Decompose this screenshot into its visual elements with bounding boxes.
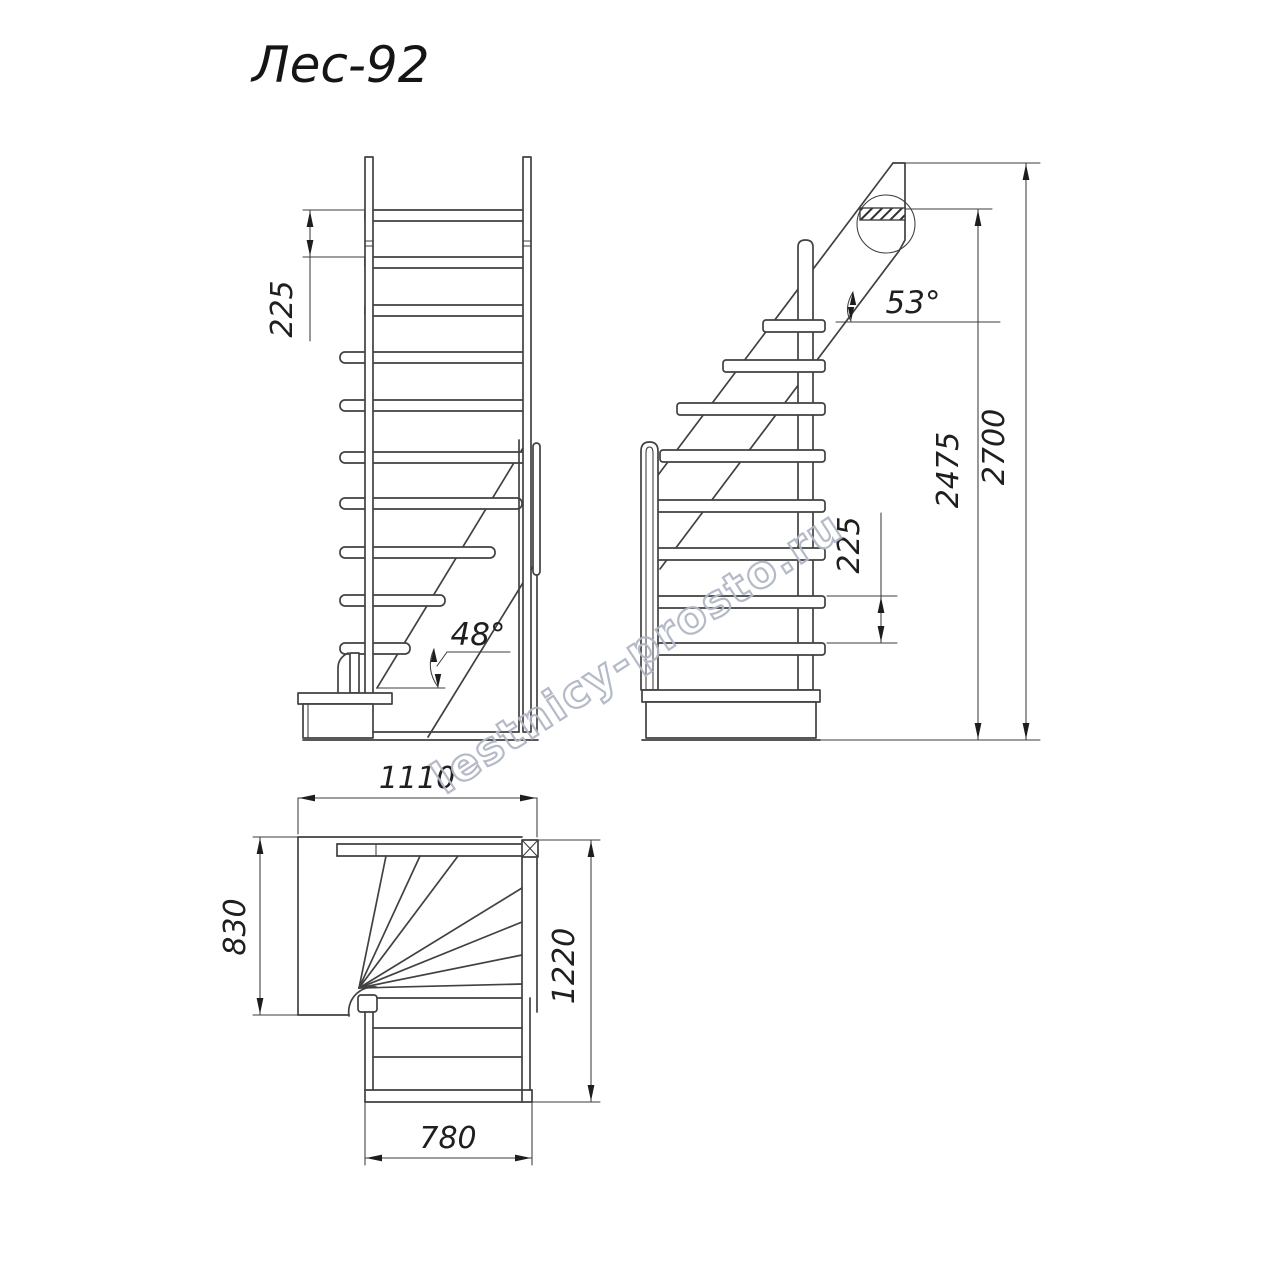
floor-detail-circle — [857, 195, 915, 253]
front-handrail-edge — [533, 443, 540, 575]
arrowhead — [515, 1155, 531, 1162]
arrowhead — [975, 210, 982, 226]
floor-slab-hatch — [860, 208, 905, 220]
winder-tread-edge — [359, 856, 386, 988]
side-tread — [723, 360, 825, 372]
front-left-post — [365, 157, 373, 700]
arrowhead — [850, 291, 856, 305]
arrowhead — [1023, 723, 1030, 739]
arrowhead — [307, 240, 314, 256]
arrowhead — [588, 841, 595, 857]
front-right-post — [523, 157, 531, 732]
side-tread — [653, 500, 825, 512]
plan-depth-dim-label: 1220 — [547, 928, 582, 1004]
arrowhead — [588, 1085, 595, 1101]
arrowhead — [975, 723, 982, 739]
plan-landing-depth-dim-label: 830 — [218, 898, 253, 955]
plan-view-drawing — [298, 837, 538, 1102]
winder-tread-edge — [359, 984, 522, 988]
arrowhead — [1023, 164, 1030, 180]
drawing-title: Лес-92 — [250, 36, 430, 94]
winder-tread-edge — [359, 856, 420, 988]
side-elevation-dimensions: 53° 225 2475 2700 — [820, 163, 1040, 740]
arrowhead — [435, 674, 441, 688]
plan-flight-width-dim-label: 780 — [419, 1121, 476, 1156]
front-base-box — [303, 704, 373, 738]
arrowhead — [307, 211, 314, 227]
blueprint-page: 225 48° — [0, 0, 1280, 1280]
arrowhead — [878, 597, 885, 613]
arrowhead — [520, 795, 536, 802]
side-tread — [677, 403, 825, 415]
blueprint-canvas: 225 48° — [0, 0, 1280, 1280]
side-base-box — [646, 702, 816, 738]
front-newel-curve — [338, 653, 348, 693]
front-tread — [340, 547, 495, 558]
plan-view-dimensions: 1110 830 1220 780 — [218, 761, 600, 1165]
front-tread — [365, 257, 530, 268]
side-tread — [763, 320, 825, 332]
plan-bottom-newel — [358, 995, 377, 1012]
arrowhead — [366, 1155, 382, 1162]
side-base-step — [642, 690, 820, 702]
front-tread — [365, 305, 530, 316]
total-height-dim-label: 2700 — [977, 409, 1012, 485]
winder-tread-edge — [359, 955, 522, 988]
front-tread — [340, 595, 445, 606]
arrowhead — [299, 795, 315, 802]
leader-line — [437, 652, 447, 666]
front-newel-post — [350, 653, 359, 693]
floor-height-dim-label: 2475 — [931, 432, 966, 508]
front-angle-label: 48° — [451, 617, 506, 653]
winder-tread-edge — [359, 888, 522, 988]
side-center-post — [798, 240, 813, 690]
arrowhead — [257, 838, 264, 854]
front-riser-dim-label: 225 — [265, 280, 300, 337]
arrowhead — [878, 626, 885, 642]
front-elevation-dimensions: 225 48° — [265, 210, 510, 688]
arrowhead — [257, 998, 264, 1014]
side-angle-label: 53° — [886, 285, 941, 321]
side-landing-edge — [893, 163, 905, 251]
side-tread — [660, 450, 825, 462]
front-tread — [365, 210, 530, 221]
front-base-step — [298, 693, 392, 704]
